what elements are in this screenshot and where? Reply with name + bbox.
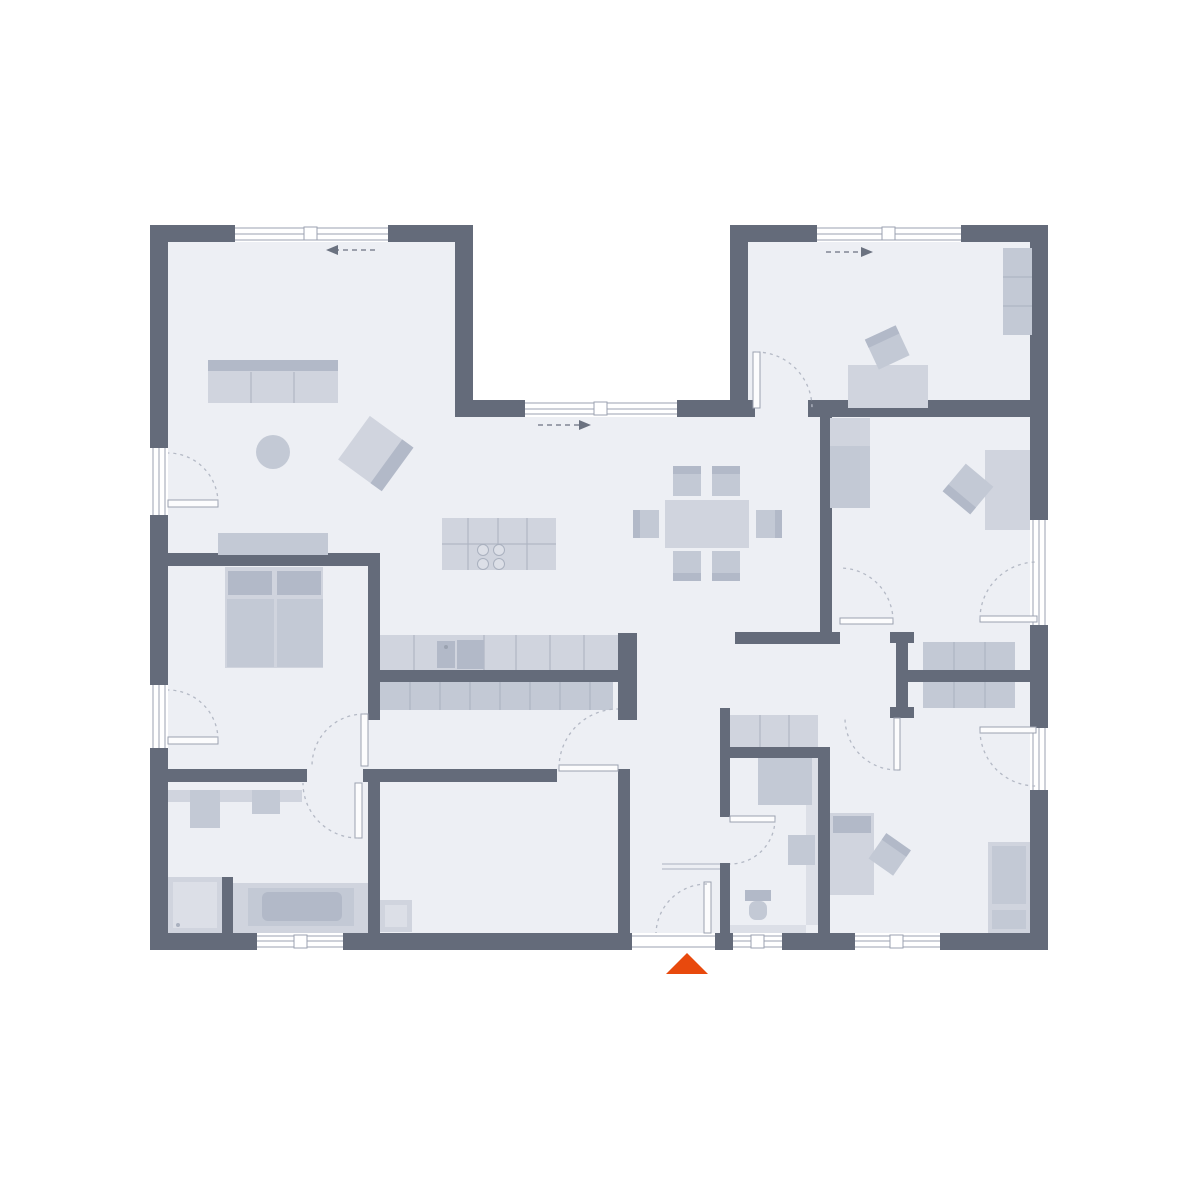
wall-wc-east [818, 747, 830, 933]
washing-machine-door [385, 905, 407, 927]
hob-burner [478, 559, 489, 570]
kitchen-stove [457, 640, 484, 669]
dining-chair-back [775, 510, 782, 538]
wall-wc-north [730, 747, 818, 758]
bed-double-blanket [227, 599, 274, 667]
bathtub-basin [262, 892, 342, 921]
window-wc-bottom-marker [751, 935, 764, 948]
dining-table [665, 500, 749, 548]
wall-bedroom1-south [168, 769, 307, 782]
entrance-marker-triangle [666, 953, 708, 974]
door-leaf-bedroom1-terrace [168, 737, 218, 744]
door-leaf-living-terrace [168, 500, 218, 507]
hob-burner [494, 545, 505, 556]
door-leaf-wc [730, 816, 775, 822]
wardrobe-southroom-inner [992, 846, 1026, 904]
shower-drain [176, 923, 180, 927]
wall-notch-right [730, 225, 748, 417]
door-leaf-bedroom1-entry [361, 714, 368, 766]
door-leaf-southroom-terrace [980, 727, 1036, 733]
wall-kitchen-peninsula [380, 670, 618, 682]
wall-hall-east-upper [720, 708, 730, 817]
wardrobe-midroom [830, 418, 870, 446]
wall-bedrooms-divider [908, 670, 1033, 682]
dining-chair-back [673, 573, 701, 581]
toilet-bowl [749, 901, 767, 920]
wardrobe-midroom [830, 446, 870, 508]
window-terrace-notch-marker [594, 402, 607, 415]
bed-double-blanket [277, 599, 323, 667]
hob-burner [478, 545, 489, 556]
wall-hall-east-lower [720, 863, 730, 933]
bed-midroom [985, 450, 1030, 530]
wall-hall-west [618, 769, 630, 933]
hob-burner [494, 559, 505, 570]
kitchen-counter-lower [380, 682, 613, 710]
door-leaf-utility [559, 765, 618, 771]
wc-closet-row [730, 715, 818, 747]
kitchen-counter-upper [380, 635, 618, 670]
toilet-tank [745, 890, 771, 901]
wc-sink [788, 835, 815, 865]
door-leaf-entrance [704, 882, 711, 933]
wall-kitchen-south [380, 769, 557, 782]
shelf [1003, 248, 1032, 335]
closet-midroom-north [923, 642, 1015, 670]
wall-bath-east [368, 769, 380, 933]
wall-hall-piece-flange-top [890, 632, 914, 643]
wc-shower [758, 758, 812, 805]
side-table-round [256, 435, 290, 469]
dining-chair-back [633, 510, 640, 538]
floor-plan-page [0, 0, 1200, 1200]
bed-double-pillow [277, 571, 321, 595]
door-leaf-midroom-hall [840, 618, 893, 624]
sofa-backrest [208, 360, 338, 371]
shower-inner [173, 882, 217, 928]
dining-chair-back [712, 466, 740, 474]
window-living-top-marker [304, 227, 317, 240]
bed-southroom-pillow [833, 816, 871, 833]
wall-hall-piece [896, 632, 908, 718]
door-leaf-bathroom [355, 783, 362, 838]
kitchen-faucet [444, 645, 448, 649]
door-leaf-midroom-terrace [980, 616, 1037, 622]
wall-hall-piece-flange-bottom [890, 707, 914, 718]
wall-outer-left [150, 225, 168, 950]
dining-chair-back [712, 573, 740, 581]
bed-double-pillow [228, 571, 272, 595]
bath-counter [168, 790, 302, 802]
sideboard [218, 533, 328, 555]
wardrobe-southroom-inner [992, 910, 1026, 929]
wc-tile-strip [730, 925, 806, 933]
bath-halfwall [222, 877, 233, 933]
wall-bedroom1-east [368, 553, 380, 720]
window-office-top-marker [882, 227, 895, 240]
floor-plan-drawing [0, 0, 1200, 1200]
door-leaf-southroom-hall [894, 718, 900, 770]
bath-sink [252, 790, 280, 814]
door-leaf-office [753, 352, 760, 408]
terrace-notch-area [455, 225, 748, 401]
closet-southroom-north [923, 682, 1015, 708]
wall-notch-left [455, 225, 473, 417]
wall-kitchen-bar [618, 633, 637, 720]
bath-sink [190, 790, 220, 828]
window-bedroom-bottom-marker [890, 935, 903, 948]
window-bath-bottom-marker [294, 935, 307, 948]
dining-chair-back [673, 466, 701, 474]
desk [848, 365, 928, 408]
